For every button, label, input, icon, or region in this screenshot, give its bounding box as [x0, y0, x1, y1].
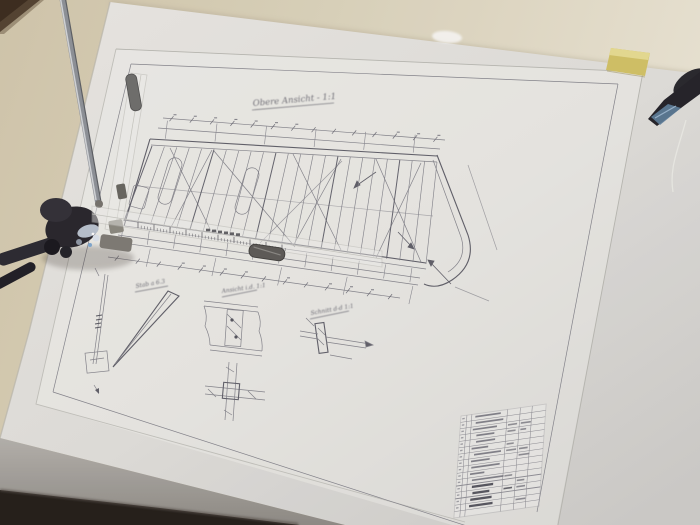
vignette [0, 0, 700, 525]
photo-of-technical-drawing: Obere Ansicht - 1:1 Stab a 6.3 Ansicht i… [0, 0, 700, 525]
